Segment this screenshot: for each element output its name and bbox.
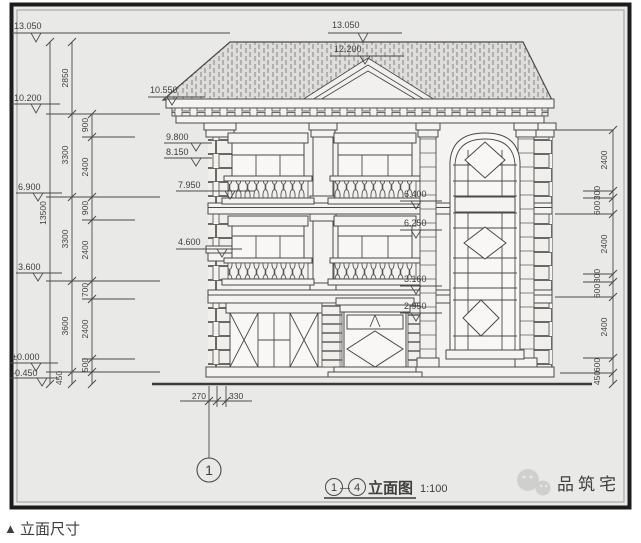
dim-sub: 900	[80, 201, 90, 215]
dim-sub: 2400	[80, 240, 90, 259]
dim-right: 450	[592, 371, 602, 385]
dim-right: 2400	[599, 150, 609, 169]
watermark-text: 品筑宅	[557, 475, 620, 494]
level-text: 4.600	[178, 237, 201, 247]
arched-window	[416, 123, 538, 367]
level-text: 6.900	[18, 182, 41, 192]
caption-text: 立面尺寸	[20, 521, 80, 538]
dim-right: 2400	[599, 234, 609, 253]
balustrade	[228, 263, 308, 279]
dim-right: 300	[592, 186, 602, 200]
first-floor	[226, 298, 428, 377]
level-text: 6.400	[404, 189, 427, 199]
dim-right: 600	[592, 201, 602, 215]
caption: ▲ 立面尺寸	[4, 521, 80, 538]
dim-right: 300	[592, 269, 602, 283]
level-text: 7.950	[178, 180, 201, 190]
balustrade	[228, 181, 308, 198]
level-text: 2.950	[404, 301, 427, 311]
title-name: 立面图	[368, 479, 413, 497]
dim-main: 3300	[60, 145, 70, 164]
axis-number: 1	[205, 462, 213, 478]
dim-right: 600	[592, 284, 602, 298]
level-text: 9.800	[166, 132, 189, 142]
dim-sub: 900	[80, 118, 90, 132]
dim-sub: 2400	[80, 157, 90, 176]
level-text: 8.150	[166, 147, 189, 157]
dim-main: 3600	[60, 316, 70, 335]
level-text: 12.200	[334, 44, 362, 54]
level-text: 10.200	[14, 93, 42, 103]
building-elevation	[152, 42, 592, 384]
elevation-drawing: 13.050 10.200 6.900 3.600 ±0.000 -0.450 …	[0, 0, 641, 543]
level-text: 3.600	[18, 262, 41, 272]
level-text: 10.550	[150, 85, 178, 95]
dim-bottom: 270	[192, 391, 206, 401]
dim-main: 2850	[60, 68, 70, 87]
title-bubble-4-text: 4	[354, 482, 360, 494]
dim-sub: 700	[80, 283, 90, 297]
level-text: 13.050	[14, 21, 42, 31]
dim-main: 450	[54, 371, 64, 385]
level-text: 13.050	[332, 20, 360, 30]
quoins-left	[208, 123, 232, 367]
arch-pilaster	[420, 137, 436, 358]
level-text: ±0.000	[12, 352, 39, 362]
title-bubble-1-text: 1	[331, 482, 337, 494]
level-text: 3.160	[404, 274, 427, 284]
dim-sub: 2400	[80, 319, 90, 338]
dim-bottom: 330	[229, 391, 243, 401]
dim-right: 600	[592, 358, 602, 372]
rusticated-pier	[322, 303, 342, 367]
screenshot: 13.050 10.200 6.900 3.600 ±0.000 -0.450 …	[0, 0, 641, 543]
level-text: -0.450	[12, 368, 38, 378]
dentil-band	[172, 108, 548, 116]
caption-marker: ▲	[4, 521, 17, 536]
dim-total: 13500	[38, 201, 48, 225]
title-scale: 1:100	[420, 483, 448, 495]
dim-sub: 500	[80, 358, 90, 372]
dim-main: 3300	[60, 229, 70, 248]
level-text: 6.250	[404, 218, 427, 228]
dim-right: 2400	[599, 317, 609, 336]
cornice	[166, 99, 554, 123]
